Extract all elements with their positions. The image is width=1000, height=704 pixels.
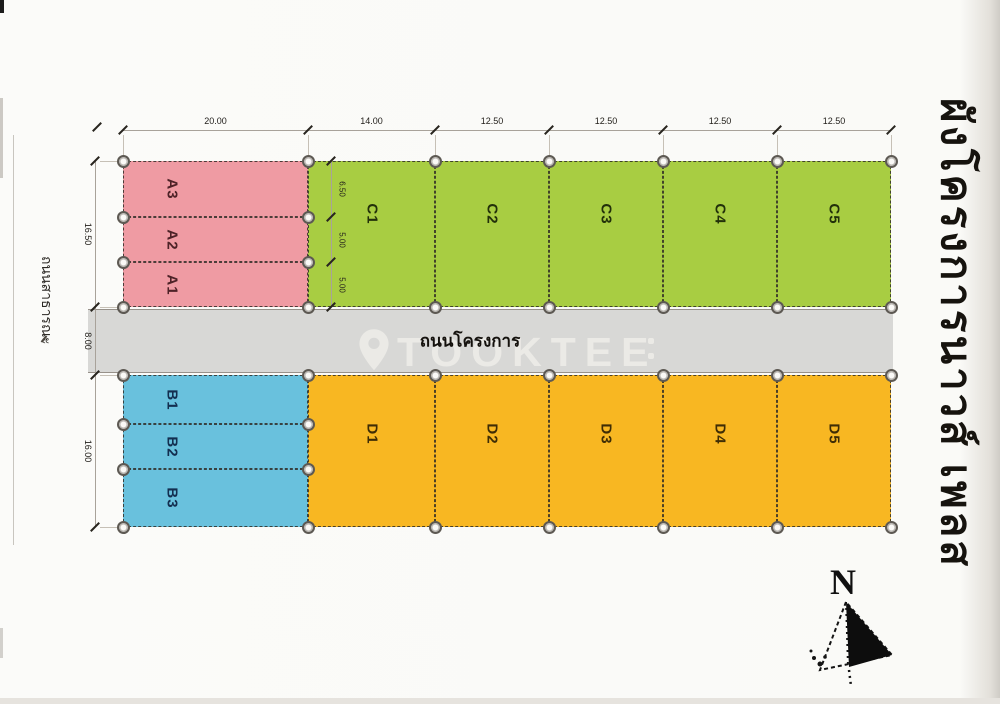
- plot-A3: [123, 161, 308, 217]
- survey-marker-circle: [771, 521, 784, 534]
- survey-marker-circle: [657, 301, 670, 314]
- survey-marker-circle: [429, 521, 442, 534]
- survey-marker-circle: [302, 521, 315, 534]
- plot-C1: [308, 161, 435, 307]
- scan-edge-artifact: [0, 98, 3, 178]
- extension-line: [663, 135, 664, 157]
- survey-marker-circle: [771, 369, 784, 382]
- scan-line-artifact: [13, 135, 14, 545]
- plot-D1: [308, 375, 435, 527]
- survey-marker-circle: [117, 155, 130, 168]
- survey-marker-circle: [302, 418, 315, 431]
- survey-marker-circle: [771, 301, 784, 314]
- inner-dimension-line: [331, 161, 332, 307]
- survey-marker-circle: [543, 521, 556, 534]
- left-road-label: ถนนสาธารณะ: [35, 256, 57, 344]
- survey-marker-circle: [429, 155, 442, 168]
- survey-marker-circle: [771, 155, 784, 168]
- survey-marker-circle: [117, 211, 130, 224]
- plot-label: D3: [598, 423, 615, 444]
- plot-label: C5: [826, 203, 843, 224]
- plot-D3: [549, 375, 663, 527]
- survey-marker-circle: [117, 301, 130, 314]
- survey-marker-circle: [885, 369, 898, 382]
- top-dimension-label: 12.50: [709, 116, 732, 126]
- survey-marker-circle: [302, 155, 315, 168]
- extension-line: [435, 135, 436, 157]
- scan-edge-artifact: [0, 698, 1000, 704]
- plot-label: A2: [164, 229, 181, 250]
- plot-label: B3: [164, 487, 181, 508]
- plot-label: D1: [363, 423, 380, 444]
- watermark-dot: [648, 338, 654, 344]
- survey-marker-circle: [885, 155, 898, 168]
- plot-label: D5: [826, 423, 843, 444]
- top-dimension-label: 20.00: [204, 116, 227, 126]
- plot-label: B1: [164, 389, 181, 410]
- survey-marker-circle: [657, 521, 670, 534]
- left-dimension-label: 8.00: [83, 332, 93, 350]
- plot-label: C1: [363, 203, 380, 224]
- extension-line: [308, 135, 309, 157]
- extension-line: [549, 135, 550, 157]
- plot-A2: [123, 217, 308, 262]
- plot-label: C4: [712, 203, 729, 224]
- inner-dimension-label: 5.00: [338, 277, 347, 293]
- inner-dimension-label: 5.00: [338, 232, 347, 248]
- survey-marker-circle: [302, 256, 315, 269]
- plot-D5: [777, 375, 891, 527]
- survey-marker-circle: [657, 369, 670, 382]
- survey-marker-circle: [885, 521, 898, 534]
- scan-edge-artifact: [0, 0, 4, 13]
- survey-marker-circle: [429, 369, 442, 382]
- survey-marker-circle: [543, 301, 556, 314]
- plot-D4: [663, 375, 777, 527]
- extension-line: [891, 135, 892, 157]
- survey-marker-circle: [117, 369, 130, 382]
- plot-label: D4: [712, 423, 729, 444]
- survey-marker-circle: [429, 301, 442, 314]
- north-arrow-compass: N: [802, 560, 902, 690]
- compass-north-letter: N: [830, 562, 856, 602]
- inner-dimension-label: 6.50: [338, 181, 347, 197]
- plot-label: A3: [164, 178, 181, 199]
- left-dimension-label: 16.50: [83, 223, 93, 246]
- plot-C2: [435, 161, 549, 307]
- top-dimension-label: 12.50: [823, 116, 846, 126]
- plot-label: B2: [164, 436, 181, 457]
- plot-label: C2: [484, 203, 501, 224]
- scanned-site-plan-page: TOOKTEE ถนนโครงการ A3A2A1B1B2B3C1C2C3C4C…: [0, 0, 1000, 704]
- survey-marker-circle: [302, 369, 315, 382]
- survey-marker-circle: [117, 463, 130, 476]
- survey-marker-circle: [302, 211, 315, 224]
- plot-A1: [123, 262, 308, 307]
- plot-B1: [123, 375, 308, 424]
- plot-B3: [123, 469, 308, 527]
- plot-C5: [777, 161, 891, 307]
- survey-marker-circle: [885, 301, 898, 314]
- plot-label: C3: [598, 203, 615, 224]
- survey-marker-circle: [543, 369, 556, 382]
- top-dimension-label: 12.50: [595, 116, 618, 126]
- plot-C4: [663, 161, 777, 307]
- scan-edge-artifact: [0, 628, 3, 658]
- survey-marker-circle: [543, 155, 556, 168]
- left-dimension-line: [95, 161, 96, 527]
- extension-line: [777, 135, 778, 157]
- plot-B2: [123, 424, 308, 469]
- top-dimension-label: 12.50: [481, 116, 504, 126]
- survey-marker-circle: [657, 155, 670, 168]
- survey-marker-circle: [117, 521, 130, 534]
- dimension-tick: [92, 122, 102, 132]
- survey-marker-circle: [302, 463, 315, 476]
- road-label: ถนนโครงการ: [420, 328, 520, 355]
- survey-marker-circle: [117, 256, 130, 269]
- plot-D2: [435, 375, 549, 527]
- project-title: ผังโครงการนาวส์ เพลส: [923, 98, 989, 569]
- survey-marker-circle: [302, 301, 315, 314]
- location-pin-icon: [358, 328, 390, 372]
- left-dimension-label: 16.00: [83, 440, 93, 463]
- survey-marker-circle: [117, 418, 130, 431]
- top-dimension-label: 14.00: [360, 116, 383, 126]
- plot-C3: [549, 161, 663, 307]
- extension-line: [123, 135, 124, 157]
- plot-label: A1: [164, 274, 181, 295]
- plot-label: D2: [484, 423, 501, 444]
- watermark-dot: [648, 353, 654, 359]
